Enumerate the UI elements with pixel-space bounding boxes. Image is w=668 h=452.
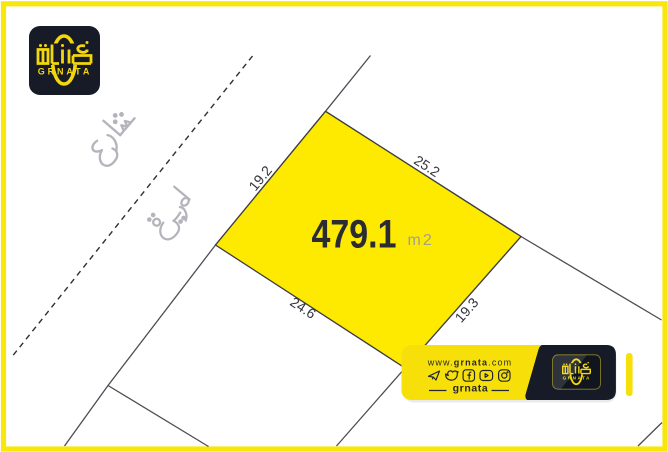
svg-text:www.grnata.com: www.grnata.com — [427, 357, 513, 367]
svg-text:479.1: 479.1 — [312, 213, 397, 257]
svg-text:m2: m2 — [408, 232, 434, 249]
svg-text:GRNATA: GRNATA — [38, 67, 93, 77]
svg-text:grnata: grnata — [453, 383, 489, 395]
